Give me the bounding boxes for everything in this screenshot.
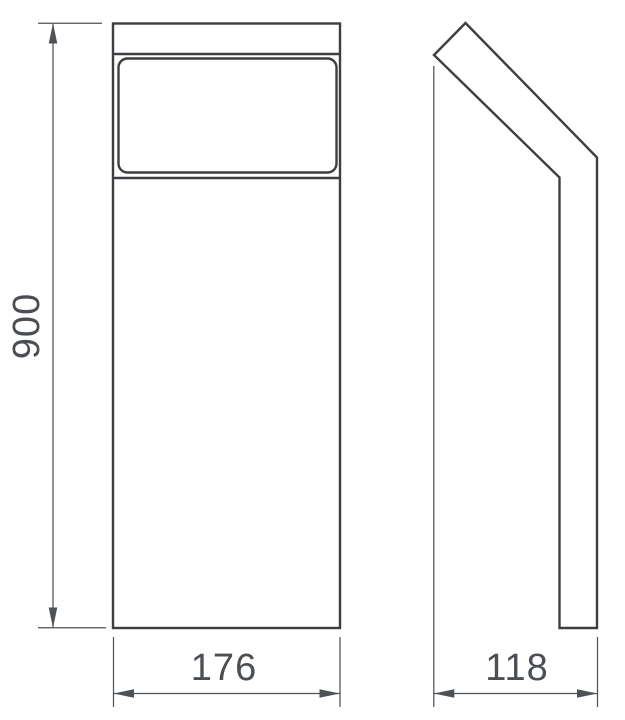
front-view-lens-panel <box>119 59 337 173</box>
arrow-right-icon <box>577 689 598 698</box>
dimension-depth: 118 <box>434 66 598 707</box>
arrow-up-icon <box>49 23 58 43</box>
luminaire-dimension-drawing: 900 176 118 <box>0 0 625 720</box>
arrow-left-icon <box>114 689 135 698</box>
side-view-profile-outline <box>434 23 597 628</box>
side-view <box>434 23 597 628</box>
arrow-right-icon <box>320 689 341 698</box>
front-view <box>113 24 340 629</box>
dimension-height: 900 <box>6 23 106 628</box>
dimension-width: 176 <box>114 637 341 707</box>
front-view-body-outline <box>113 24 340 629</box>
depth-dimension-label: 118 <box>485 647 549 689</box>
technical-drawing-page: 900 176 118 <box>0 0 625 720</box>
width-dimension-label: 176 <box>191 647 257 689</box>
height-dimension-label: 900 <box>6 293 48 359</box>
arrow-down-icon <box>49 608 58 628</box>
arrow-left-icon <box>434 689 455 698</box>
